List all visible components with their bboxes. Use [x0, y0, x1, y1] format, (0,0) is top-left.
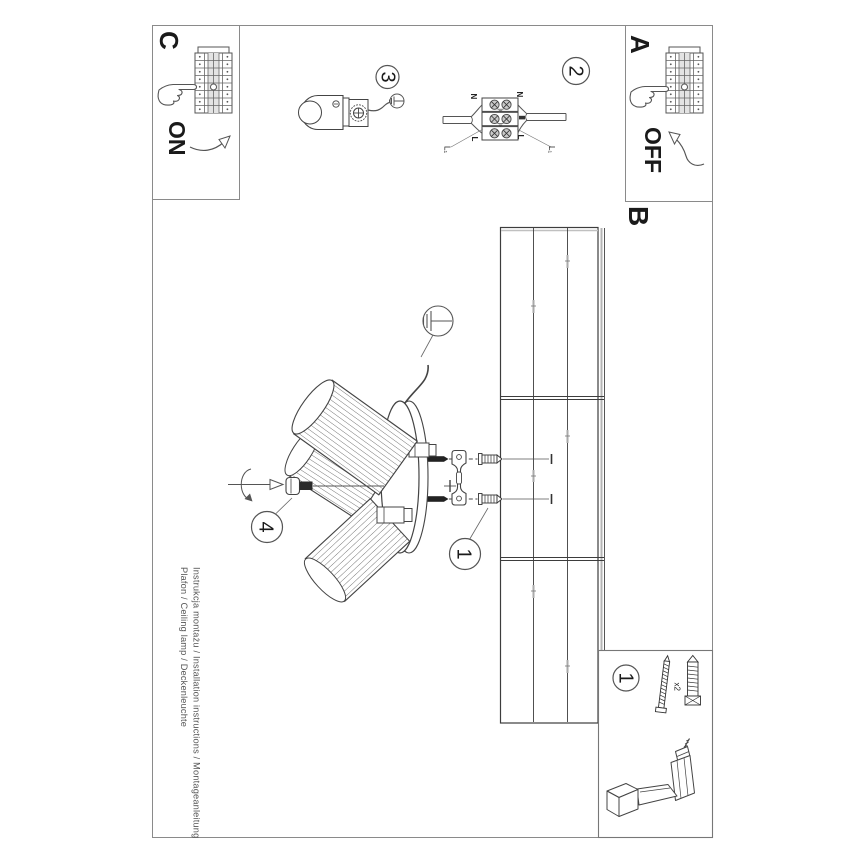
screw-quantity: x2	[673, 683, 682, 692]
parts-box: 1 x2	[599, 651, 713, 838]
footer-instructions-title: Instrukcja montażu / Installation instru…	[192, 567, 202, 838]
earth-symbol-small-icon	[390, 94, 405, 108]
parts-step-number: 1	[615, 672, 637, 683]
wall-plug-icon	[685, 656, 701, 706]
step-2-number: 2	[565, 65, 587, 76]
panel-a-state: OFF	[640, 127, 666, 173]
circuit-breaker-icon	[666, 47, 703, 113]
label-neutral-left: N	[469, 94, 478, 100]
label-neutral-right: N	[515, 92, 524, 98]
panel-c-state: ON	[164, 121, 190, 156]
section-b-label: B	[623, 206, 654, 226]
label-l1-left: L₁	[443, 146, 452, 153]
circuit-breaker-icon	[195, 47, 232, 113]
step-3-number: 3	[377, 71, 399, 82]
step-1-number: 1	[453, 548, 475, 559]
page-background	[0, 0, 868, 868]
footer-product-name: Plafon / Ceiling lamp / Deckenleuchte	[179, 567, 189, 727]
ceiling-plank-panel	[501, 228, 605, 724]
step-4-number: 4	[255, 521, 277, 532]
terminal-row-line	[482, 127, 518, 140]
instruction-drawing: C ON A OFF B	[0, 0, 868, 868]
lamp-arm-lower	[377, 507, 412, 523]
label-l1-right: L₁	[547, 146, 556, 153]
label-line-right: L	[516, 135, 525, 140]
label-line-left: L	[470, 137, 479, 142]
panel-c-label: C	[154, 31, 184, 50]
instruction-sheet: C ON A OFF B	[0, 0, 868, 868]
panel-a-label: A	[625, 35, 655, 54]
